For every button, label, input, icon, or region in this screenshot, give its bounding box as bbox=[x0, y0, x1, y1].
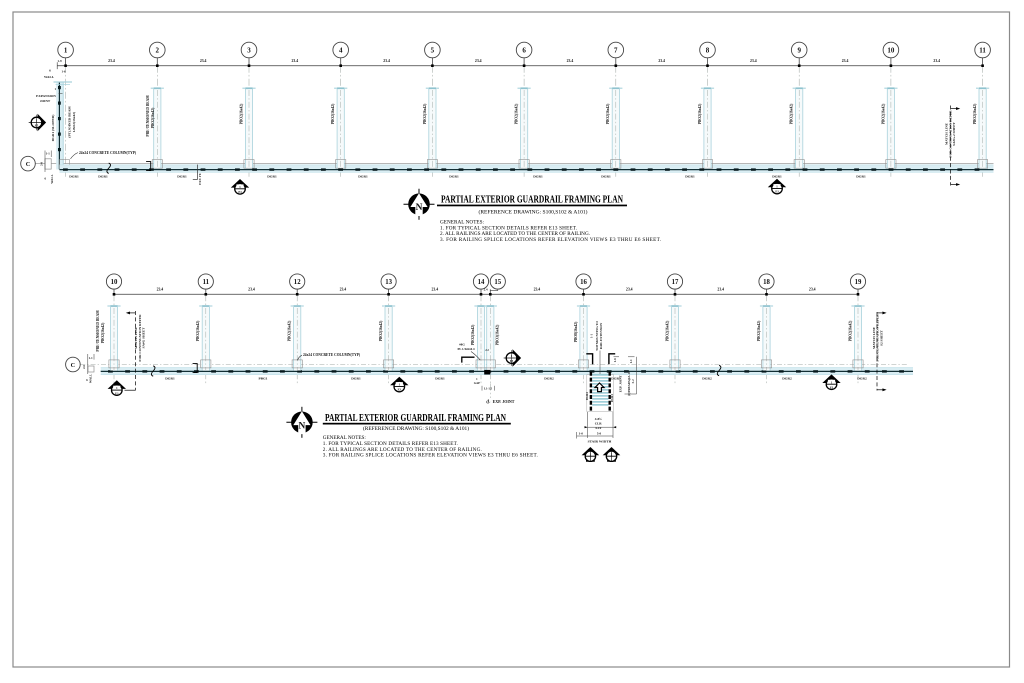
svg-text:PBO2(16x42): PBO2(16x42) bbox=[239, 103, 243, 124]
svg-text:WALL: WALL bbox=[50, 174, 54, 183]
svg-text:1-1: 1-1 bbox=[629, 359, 633, 363]
svg-text:PRE-TENSIONED BEAM: PRE-TENSIONED BEAM bbox=[146, 95, 150, 137]
svg-text:RAIL EXTENSION: RAIL EXTENSION bbox=[599, 322, 603, 349]
svg-text:PBO8(16x42): PBO8(16x42) bbox=[574, 321, 578, 342]
svg-text:1-0: 1-0 bbox=[579, 432, 584, 436]
svg-text:PBO2(16x42): PBO2(16x42) bbox=[790, 103, 794, 124]
svg-text:23.4: 23.4 bbox=[475, 59, 482, 63]
svg-text:5-2: 5-2 bbox=[631, 379, 635, 383]
svg-text:11: 11 bbox=[203, 279, 210, 286]
svg-text:L: L bbox=[488, 399, 491, 404]
svg-text:14: 14 bbox=[478, 279, 485, 286]
svg-text:DGR1: DGR1 bbox=[435, 377, 445, 381]
svg-text:PBO2(16x42): PBO2(16x42) bbox=[515, 103, 519, 124]
svg-text:5: 5 bbox=[431, 46, 435, 54]
svg-text:N: N bbox=[299, 421, 306, 431]
svg-text:(REFERENCE DRAWING: S100,S102: (REFERENCE DRAWING: S100,S102 & A101) bbox=[479, 208, 588, 215]
svg-text:EXPANSION: EXPANSION bbox=[36, 94, 56, 98]
svg-text:23.4: 23.4 bbox=[248, 288, 255, 292]
svg-text:2-0: 2-0 bbox=[40, 162, 44, 166]
svg-text:11: 11 bbox=[979, 46, 986, 54]
svg-text:CLR: CLR bbox=[595, 422, 603, 426]
svg-text:1-1: 1-1 bbox=[46, 152, 50, 156]
svg-text:PBO2(16x42): PBO2(16x42) bbox=[101, 322, 105, 343]
svg-text:24x24 CONCRETE COLUMN(TYP): 24x24 CONCRETE COLUMN(TYP) bbox=[303, 353, 361, 357]
svg-text:PBO2(16x42): PBO2(16x42) bbox=[606, 103, 610, 124]
svg-text:LBO2(16x42): LBO2(16x42) bbox=[72, 111, 76, 132]
svg-text:PARTIAL EXTERIOR GUARDRAIL FRA: PARTIAL EXTERIOR GUARDRAIL FRAMING PLAN bbox=[325, 413, 506, 424]
svg-text:E5: E5 bbox=[35, 124, 39, 128]
svg-text:DGR1: DGR1 bbox=[772, 175, 782, 179]
svg-text:2: 2 bbox=[156, 46, 160, 54]
svg-text:STAIR WIDTH: STAIR WIDTH bbox=[588, 439, 612, 443]
svg-text:9: 9 bbox=[797, 46, 801, 54]
svg-text:DGR2: DGR2 bbox=[857, 377, 867, 381]
svg-text:PBO2(16x42): PBO2(16x42) bbox=[196, 320, 200, 341]
svg-text:WALL: WALL bbox=[89, 374, 93, 383]
svg-text:DGR1: DGR1 bbox=[601, 175, 611, 179]
svg-text:PRE-TENSIONED BEAM: PRE-TENSIONED BEAM bbox=[96, 310, 100, 352]
svg-text:6: 6 bbox=[522, 46, 526, 54]
svg-text:24x24 CONCRETE COLUMN(TYP): 24x24 CONCRETE COLUMN(TYP) bbox=[79, 151, 137, 155]
svg-text:PBO2(16x42): PBO2(16x42) bbox=[151, 107, 155, 128]
svg-text:E3: E3 bbox=[830, 385, 834, 389]
svg-text:2.2: 2.2 bbox=[485, 348, 489, 352]
svg-text:DGR1: DGR1 bbox=[449, 175, 459, 179]
svg-text:23.4: 23.4 bbox=[200, 59, 207, 63]
svg-text:DGR1: DGR1 bbox=[533, 175, 543, 179]
svg-text:PBG1: PBG1 bbox=[259, 377, 268, 381]
svg-text:23.4: 23.4 bbox=[534, 288, 541, 292]
svg-text:5-0: 5-0 bbox=[597, 432, 602, 436]
svg-text:23.4: 23.4 bbox=[292, 59, 299, 63]
svg-text:PBO2(16x42): PBO2(16x42) bbox=[288, 320, 292, 341]
svg-text:PBO2(16x42): PBO2(16x42) bbox=[698, 103, 702, 124]
svg-text:S2 SHEET: S2 SHEET bbox=[879, 329, 883, 345]
svg-text:23.4: 23.4 bbox=[658, 59, 665, 63]
svg-text:DGR1: DGR1 bbox=[856, 175, 866, 179]
svg-text:23.4: 23.4 bbox=[933, 59, 940, 63]
svg-text:PBO2(16x42): PBO2(16x42) bbox=[423, 103, 427, 124]
svg-text:23.4: 23.4 bbox=[626, 288, 633, 292]
svg-text:WALL: WALL bbox=[44, 75, 55, 79]
svg-text:12: 12 bbox=[294, 279, 301, 286]
svg-text:E5: E5 bbox=[510, 359, 514, 363]
svg-text:EXP. JT.: EXP. JT. bbox=[198, 173, 202, 185]
svg-text:4: 4 bbox=[339, 46, 343, 54]
svg-text:2-6: 2-6 bbox=[82, 365, 86, 369]
svg-text:PBO2(16x42): PBO2(16x42) bbox=[379, 320, 383, 341]
svg-text:23.4: 23.4 bbox=[567, 59, 574, 63]
svg-text:GAP: GAP bbox=[474, 381, 480, 385]
svg-text:DGR2: DGR2 bbox=[585, 391, 589, 400]
svg-text:#8G: #8G bbox=[459, 342, 465, 346]
svg-text:23.4: 23.4 bbox=[340, 288, 347, 292]
svg-text:C: C bbox=[26, 161, 30, 168]
svg-text:L1-1.5: L1-1.5 bbox=[484, 386, 493, 390]
svg-text:PL 1/4x6x0.4: PL 1/4x6x0.4 bbox=[457, 347, 474, 351]
svg-text:PARTIAL EXTERIOR GUARDRAIL FRA: PARTIAL EXTERIOR GUARDRAIL FRAMING PLAN bbox=[441, 195, 623, 206]
svg-text:(REFERENCE DRAWING: S100,S102: (REFERENCE DRAWING: S100,S102 & A101) bbox=[363, 425, 469, 432]
svg-text:PBO2(16x42): PBO2(16x42) bbox=[973, 103, 977, 124]
svg-text:DGR1: DGR1 bbox=[267, 175, 277, 179]
svg-text:DGR1: DGR1 bbox=[98, 175, 108, 179]
svg-text:10: 10 bbox=[111, 279, 118, 286]
svg-text:SA#G SHEET: SA#G SHEET bbox=[142, 327, 146, 349]
svg-text:23.4: 23.4 bbox=[383, 59, 390, 63]
svg-text:23.4: 23.4 bbox=[157, 288, 164, 292]
svg-text:8: 8 bbox=[706, 46, 710, 54]
svg-text:3: 3 bbox=[247, 46, 251, 54]
svg-text:1-1: 1-1 bbox=[89, 356, 93, 360]
svg-text:1: 1 bbox=[64, 46, 68, 54]
svg-text:C: C bbox=[71, 362, 75, 369]
svg-text:PBO2(16x42): PBO2(16x42) bbox=[881, 103, 885, 124]
svg-text:(PT)JOINED BEAM: (PT)JOINED BEAM bbox=[67, 106, 71, 138]
svg-text:DGR1: DGR1 bbox=[358, 175, 368, 179]
svg-text:DGR2: DGR2 bbox=[782, 377, 792, 381]
svg-text:PBO2(16x42): PBO2(16x42) bbox=[757, 320, 761, 341]
svg-text:16: 16 bbox=[580, 279, 587, 286]
svg-text:EXP. JOINT: EXP. JOINT bbox=[618, 374, 622, 392]
svg-text:13: 13 bbox=[385, 279, 392, 286]
svg-text:23.4: 23.4 bbox=[717, 288, 724, 292]
svg-text:4-8¾: 4-8¾ bbox=[595, 417, 602, 421]
svg-text:23.4: 23.4 bbox=[431, 288, 438, 292]
svg-text:DGR1: DGR1 bbox=[351, 377, 361, 381]
svg-text:E3: E3 bbox=[775, 190, 779, 194]
svg-text:PBO2(16x42): PBO2(16x42) bbox=[665, 320, 669, 341]
svg-text:17: 17 bbox=[672, 279, 679, 286]
svg-text:23.4: 23.4 bbox=[809, 288, 816, 292]
svg-text:18: 18 bbox=[763, 279, 770, 286]
svg-text:DGR2: DGR2 bbox=[544, 377, 554, 381]
svg-text:E3: E3 bbox=[398, 388, 402, 392]
svg-text:DGR1: DGR1 bbox=[610, 393, 614, 402]
svg-text:DGR1: DGR1 bbox=[165, 377, 175, 381]
svg-text:DGR1: DGR1 bbox=[685, 175, 695, 179]
svg-text:15: 15 bbox=[494, 279, 501, 286]
svg-text:DGR1 (SLOPED): DGR1 (SLOPED) bbox=[51, 114, 55, 142]
svg-text:DGR2: DGR2 bbox=[702, 377, 712, 381]
svg-text:1-6: 1-6 bbox=[62, 70, 66, 74]
svg-text:DGR1: DGR1 bbox=[177, 175, 187, 179]
svg-text:3. FOR RAILING SPLICE LOCATION: 3. FOR RAILING SPLICE LOCATIONS REFER EL… bbox=[323, 453, 538, 459]
svg-text:7: 7 bbox=[614, 46, 618, 54]
svg-text:19: 19 bbox=[855, 279, 862, 286]
svg-text:PBO2(16x42): PBO2(16x42) bbox=[848, 320, 852, 341]
svg-text:10: 10 bbox=[887, 46, 895, 54]
svg-text:EXP. JOINT: EXP. JOINT bbox=[493, 399, 515, 404]
svg-text:E3: E3 bbox=[115, 391, 119, 395]
svg-text:DGR1: DGR1 bbox=[69, 175, 79, 179]
svg-text:23.4: 23.4 bbox=[108, 59, 115, 63]
svg-text:SA#G-2 SHEET: SA#G-2 SHEET bbox=[952, 121, 956, 145]
svg-text:4-10: 4-10 bbox=[595, 426, 601, 430]
svg-text:3. FOR RAILING SPLICE LOCATION: 3. FOR RAILING SPLICE LOCATIONS REFER EL… bbox=[440, 237, 661, 243]
svg-text:JOINT: JOINT bbox=[40, 99, 51, 103]
svg-text:PBO3(16x42): PBO3(16x42) bbox=[496, 324, 500, 345]
svg-text:E3: E3 bbox=[238, 190, 242, 194]
svg-text:PBO2(16x42): PBO2(16x42) bbox=[471, 324, 475, 345]
svg-text:1-0: 1-0 bbox=[613, 358, 617, 362]
svg-text:23.4: 23.4 bbox=[842, 59, 849, 63]
svg-text:23.4: 23.4 bbox=[750, 59, 757, 63]
svg-text:PBO2(16x42): PBO2(16x42) bbox=[331, 103, 335, 124]
svg-text:1-1: 1-1 bbox=[589, 334, 593, 338]
svg-text:1-9: 1-9 bbox=[57, 59, 62, 63]
svg-text:N: N bbox=[416, 203, 423, 213]
svg-text:(6)TREADS@A-11: (6)TREADS@A-11 bbox=[627, 371, 631, 396]
